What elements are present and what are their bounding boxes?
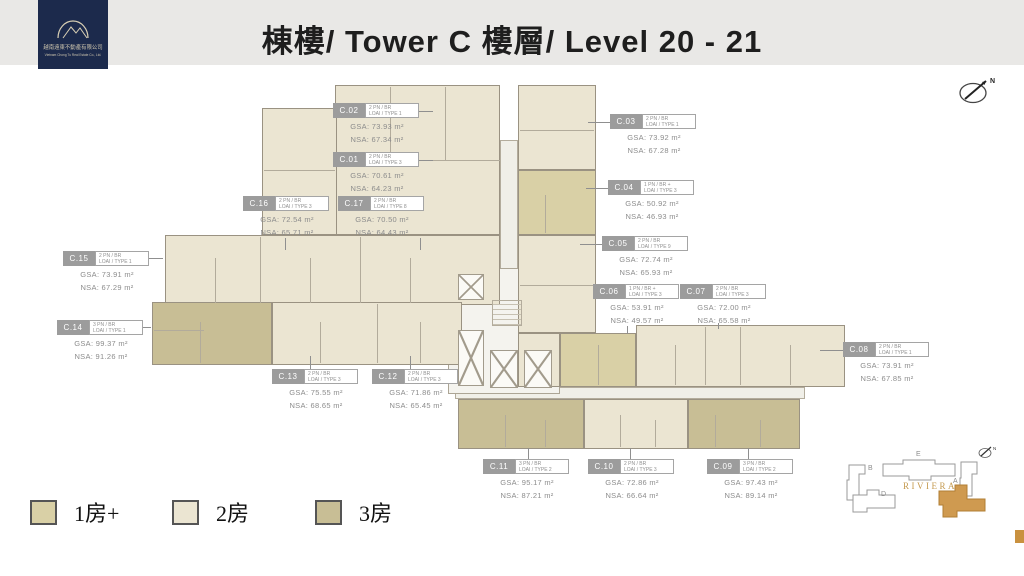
interior-wall — [264, 170, 335, 171]
site-building-c-label: C — [943, 492, 948, 499]
unit-type-line2: LOAI / TYPE 3 — [629, 292, 678, 298]
unit-id-badge: C.05 — [602, 236, 634, 251]
unit-nsa: NSA: 67.34 m² — [333, 135, 421, 144]
interior-wall — [520, 130, 594, 131]
leader-line — [420, 238, 421, 250]
unit-type-line2: LOAI / TYPE 1 — [879, 350, 928, 356]
interior-wall — [215, 258, 216, 303]
unit-type-line2: LOAI / TYPE 3 — [408, 377, 457, 383]
leader-line — [588, 122, 610, 123]
logo-background — [38, 0, 108, 69]
unit-nsa: NSA: 64.43 m² — [338, 228, 426, 237]
unit-type-box: 2 PN / BR LOAI / TYPE 1 — [365, 103, 419, 118]
unit-type-box: 2 PN / BR LOAI / TYPE 3 — [712, 284, 766, 299]
unit-type-line2: LOAI / TYPE 2 — [519, 467, 568, 473]
unit-type-line2: LOAI / TYPE 1 — [646, 122, 695, 128]
interior-wall — [740, 327, 741, 385]
unit-nsa: NSA: 67.85 m² — [843, 374, 931, 383]
company-logo: 越南遠東不動產有限公司 Vietnam Chong Tu Real Estate… — [38, 0, 108, 69]
unit-gsa: GSA: 95.17 m² — [483, 478, 571, 487]
unit-nsa: NSA: 91.26 m² — [57, 352, 145, 361]
interior-wall — [420, 322, 421, 363]
unit-label: C.06 1 PN / BR + LOAI / TYPE 3 GSA: 53.9… — [593, 284, 681, 325]
legend-swatch-3br — [315, 500, 342, 525]
logo-company-zh: 越南遠東不動產有限公司 — [43, 43, 102, 51]
interior-wall — [545, 195, 546, 233]
unit-id-badge: C.08 — [843, 342, 875, 357]
apartment-block — [518, 85, 596, 170]
page-title: 棟樓/ Tower C 樓層/ Level 20 - 21 — [262, 16, 762, 61]
unit-nsa: NSA: 46.93 m² — [608, 212, 696, 221]
unit-nsa: NSA: 87.21 m² — [483, 491, 571, 500]
unit-gsa: GSA: 70.50 m² — [338, 215, 426, 224]
unit-id-badge: C.04 — [608, 180, 640, 195]
unit-label: C.04 1 PN / BR + LOAI / TYPE 3 GSA: 50.9… — [608, 180, 696, 221]
unit-type-box: 2 PN / BR LOAI / TYPE 3 — [404, 369, 458, 384]
unit-label: C.05 2 PN / BR LOAI / TYPE 9 GSA: 72.74 … — [602, 236, 690, 277]
staircase-icon — [492, 300, 522, 326]
interior-wall — [505, 415, 506, 447]
unit-id-badge: C.06 — [593, 284, 625, 299]
unit-label: C.14 3 PN / BR LOAI / TYPE 1 GSA: 99.37 … — [57, 320, 145, 361]
unit-gsa: GSA: 73.93 m² — [333, 122, 421, 131]
unit-gsa: GSA: 97.43 m² — [707, 478, 795, 487]
unit-id-badge: C.10 — [588, 459, 620, 474]
legend-item-2br: 2房 — [172, 496, 249, 528]
unit-nsa: NSA: 65.45 m² — [372, 401, 460, 410]
unit-nsa: NSA: 67.29 m² — [63, 283, 151, 292]
unit-id-badge: C.17 — [338, 196, 370, 211]
leader-line — [410, 356, 411, 369]
unit-type-line2: LOAI / TYPE 3 — [624, 467, 673, 473]
elevator-shaft-icon — [490, 350, 518, 388]
unit-gsa: GSA: 70.61 m² — [333, 171, 421, 180]
unit-type-box: 2 PN / BR LOAI / TYPE 3 — [620, 459, 674, 474]
unit-nsa: NSA: 65.93 m² — [602, 268, 690, 277]
unit-id-badge: C.11 — [483, 459, 515, 474]
interior-wall — [655, 420, 656, 447]
legend-swatch-2br — [172, 500, 199, 525]
unit-type-line2: LOAI / TYPE 3 — [716, 292, 765, 298]
unit-id-badge: C.03 — [610, 114, 642, 129]
unit-gsa: GSA: 99.37 m² — [57, 339, 145, 348]
legend-item-3br: 3房 — [315, 496, 392, 528]
interior-wall — [790, 345, 791, 385]
unit-nsa: NSA: 64.23 m² — [333, 184, 421, 193]
site-building-d-label: D — [881, 491, 886, 498]
unit-id-badge: C.02 — [333, 103, 365, 118]
unit-type-line2: LOAI / TYPE 3 — [308, 377, 357, 383]
unit-label: C.13 2 PN / BR LOAI / TYPE 3 GSA: 75.55 … — [272, 369, 360, 410]
unit-gsa: GSA: 75.55 m² — [272, 388, 360, 397]
leader-line — [748, 448, 749, 459]
unit-nsa: NSA: 68.65 m² — [272, 401, 360, 410]
unit-gsa: GSA: 72.74 m² — [602, 255, 690, 264]
unit-nsa: NSA: 65.71 m² — [243, 228, 331, 237]
unit-type-line2: LOAI / TYPE 3 — [279, 204, 328, 210]
unit-type-box: 3 PN / BR LOAI / TYPE 2 — [515, 459, 569, 474]
slide: 越南遠東不動產有限公司 Vietnam Chong Tu Real Estate… — [0, 0, 1024, 576]
unit-type-line2: LOAI / TYPE 8 — [374, 204, 423, 210]
interior-wall — [445, 87, 446, 160]
unit-label: C.01 2 PN / BR LOAI / TYPE 3 GSA: 70.61 … — [333, 152, 421, 193]
interior-wall — [410, 258, 411, 303]
interior-wall — [705, 327, 706, 385]
legend-item-1br: 1房+ — [30, 496, 119, 528]
unit-id-badge: C.01 — [333, 152, 365, 167]
unit-type-line2: LOAI / TYPE 3 — [369, 160, 418, 166]
apartment-block — [584, 399, 688, 449]
unit-type-box: 2 PN / BR LOAI / TYPE 1 — [875, 342, 929, 357]
interior-wall — [310, 258, 311, 303]
interior-wall — [260, 237, 261, 303]
elevator-shaft-icon — [524, 350, 552, 388]
leader-line — [580, 244, 602, 245]
unit-type-box: 2 PN / BR LOAI / TYPE 9 — [634, 236, 688, 251]
unit-type-line2: LOAI / TYPE 2 — [743, 467, 792, 473]
interior-wall — [154, 330, 204, 331]
elevator-shaft-icon — [458, 330, 484, 386]
unit-id-badge: C.14 — [57, 320, 89, 335]
unit-type-line2: LOAI / TYPE 3 — [644, 188, 693, 194]
site-building-e-outline — [883, 460, 955, 480]
svg-text:N: N — [993, 446, 996, 451]
leader-line — [285, 238, 286, 250]
unit-label: C.10 2 PN / BR LOAI / TYPE 3 GSA: 72.86 … — [588, 459, 676, 500]
north-compass-icon: N — [953, 74, 1005, 111]
unit-nsa: NSA: 65.58 m² — [680, 316, 768, 325]
unit-label: C.15 2 PN / BR LOAI / TYPE 1 GSA: 73.91 … — [63, 251, 151, 292]
unit-id-badge: C.07 — [680, 284, 712, 299]
apartment-block — [458, 399, 584, 449]
apartment-block — [152, 302, 272, 365]
leader-line — [310, 356, 311, 369]
unit-type-line2: LOAI / TYPE 1 — [93, 328, 142, 334]
unit-type-box: 2 PN / BR LOAI / TYPE 3 — [304, 369, 358, 384]
site-building-b-label: B — [868, 465, 873, 472]
unit-gsa: GSA: 73.91 m² — [843, 361, 931, 370]
interior-wall — [715, 415, 716, 447]
apartment-block — [272, 302, 462, 365]
unit-gsa: GSA: 72.86 m² — [588, 478, 676, 487]
interior-wall — [377, 304, 378, 363]
unit-label: C.16 2 PN / BR LOAI / TYPE 3 GSA: 72.54 … — [243, 196, 331, 237]
legend-label-3br: 3房 — [359, 496, 392, 528]
interior-wall — [360, 237, 361, 303]
unit-type-box: 2 PN / BR LOAI / TYPE 8 — [370, 196, 424, 211]
unit-id-badge: C.12 — [372, 369, 404, 384]
unit-label: C.03 2 PN / BR LOAI / TYPE 1 GSA: 73.92 … — [610, 114, 698, 155]
unit-gsa: GSA: 71.86 m² — [372, 388, 460, 397]
unit-nsa: NSA: 67.28 m² — [610, 146, 698, 155]
unit-label: C.12 2 PN / BR LOAI / TYPE 3 GSA: 71.86 … — [372, 369, 460, 410]
site-map: B E A D C RIVIERA N — [835, 443, 1024, 566]
unit-gsa: GSA: 72.00 m² — [680, 303, 768, 312]
unit-nsa: NSA: 89.14 m² — [707, 491, 795, 500]
apartment-block — [518, 170, 596, 235]
legend-swatch-1br — [30, 500, 57, 525]
site-map-compass-icon: N — [979, 446, 996, 458]
interior-wall — [620, 415, 621, 447]
unit-nsa: NSA: 66.64 m² — [588, 491, 676, 500]
unit-id-badge: C.09 — [707, 459, 739, 474]
unit-type-line2: LOAI / TYPE 1 — [99, 259, 148, 265]
legend-label-1br: 1房+ — [74, 496, 119, 528]
unit-gsa: GSA: 73.92 m² — [610, 133, 698, 142]
unit-type-line2: LOAI / TYPE 1 — [369, 111, 418, 117]
unit-nsa: NSA: 49.57 m² — [593, 316, 681, 325]
unit-gsa: GSA: 72.54 m² — [243, 215, 331, 224]
leader-line — [528, 448, 529, 459]
interior-wall — [760, 420, 761, 447]
unit-label: C.09 3 PN / BR LOAI / TYPE 2 GSA: 97.43 … — [707, 459, 795, 500]
unit-gsa: GSA: 50.92 m² — [608, 199, 696, 208]
unit-label: C.11 3 PN / BR LOAI / TYPE 2 GSA: 95.17 … — [483, 459, 571, 500]
unit-id-badge: C.13 — [272, 369, 304, 384]
unit-type-box: 1 PN / BR + LOAI / TYPE 3 — [625, 284, 679, 299]
svg-text:N: N — [990, 78, 995, 85]
leader-line — [820, 350, 843, 351]
unit-type-box: 2 PN / BR LOAI / TYPE 1 — [95, 251, 149, 266]
legend-label-2br: 2房 — [216, 496, 249, 528]
project-name: RIVIERA — [903, 481, 957, 491]
unit-label: C.08 2 PN / BR LOAI / TYPE 1 GSA: 73.91 … — [843, 342, 931, 383]
site-building-e-label: E — [916, 451, 921, 458]
elevator-shaft-icon — [458, 274, 484, 300]
unit-type-box: 3 PN / BR LOAI / TYPE 1 — [89, 320, 143, 335]
unit-label: C.17 2 PN / BR LOAI / TYPE 8 GSA: 70.50 … — [338, 196, 426, 237]
interior-wall — [320, 322, 321, 363]
unit-type-box: 2 PN / BR LOAI / TYPE 1 — [642, 114, 696, 129]
unit-type-box: 2 PN / BR LOAI / TYPE 3 — [275, 196, 329, 211]
interior-wall — [200, 322, 201, 363]
unit-type-box: 1 PN / BR + LOAI / TYPE 3 — [640, 180, 694, 195]
interior-wall — [545, 420, 546, 447]
logo-company-en: Vietnam Chong Tu Real Estate Co., Ltd. — [45, 53, 102, 57]
leader-line — [586, 188, 608, 189]
apartment-block — [518, 235, 596, 333]
interior-wall — [598, 345, 599, 385]
unit-type-box: 3 PN / BR LOAI / TYPE 2 — [739, 459, 793, 474]
interior-wall — [520, 285, 594, 286]
unit-gsa: GSA: 73.91 m² — [63, 270, 151, 279]
interior-wall — [675, 345, 676, 385]
unit-type-box: 2 PN / BR LOAI / TYPE 3 — [365, 152, 419, 167]
slide-corner-marker — [1015, 530, 1024, 543]
leader-line — [630, 448, 631, 459]
unit-type-line2: LOAI / TYPE 9 — [638, 244, 687, 250]
unit-id-badge: C.15 — [63, 251, 95, 266]
leader-line — [627, 326, 628, 334]
unit-label: C.02 2 PN / BR LOAI / TYPE 1 GSA: 73.93 … — [333, 103, 421, 144]
unit-gsa: GSA: 53.91 m² — [593, 303, 681, 312]
apartment-block — [688, 399, 800, 449]
unit-label: C.07 2 PN / BR LOAI / TYPE 3 GSA: 72.00 … — [680, 284, 768, 325]
unit-id-badge: C.16 — [243, 196, 275, 211]
